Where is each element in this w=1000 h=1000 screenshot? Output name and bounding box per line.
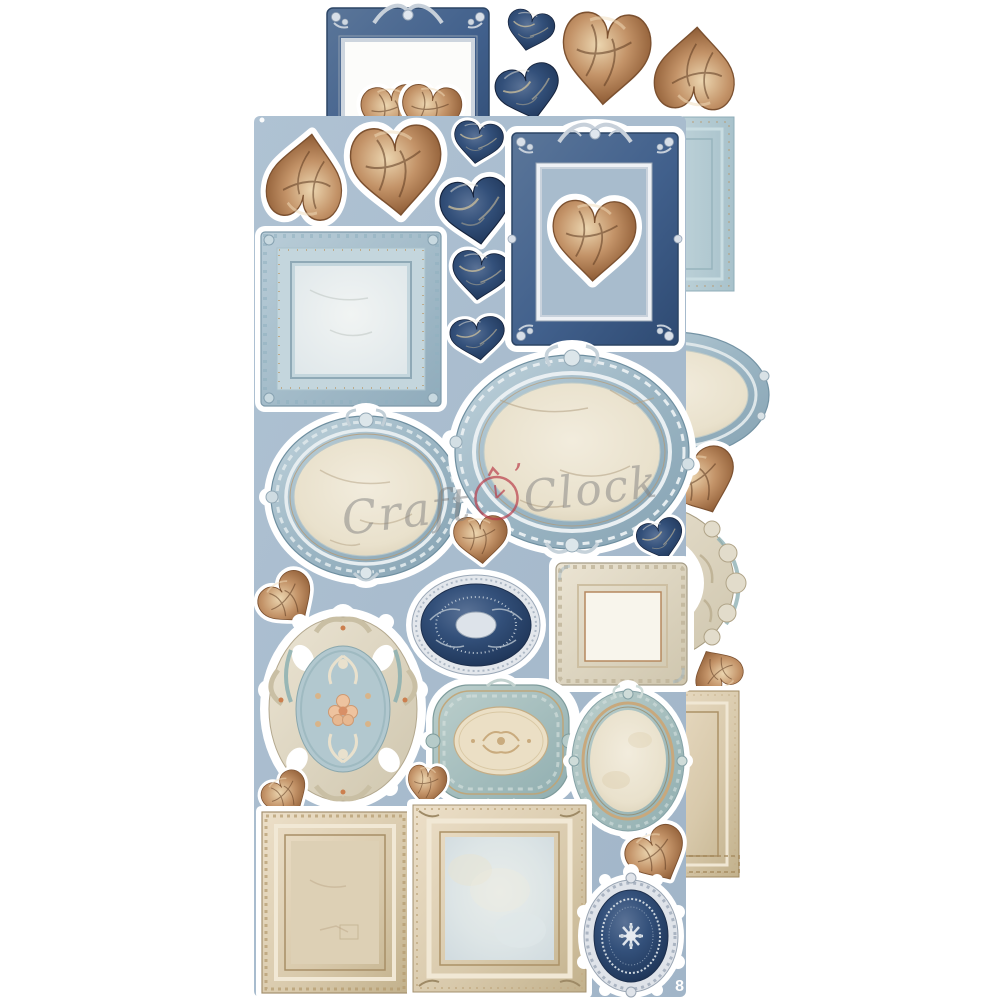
frame-beige-square-icon — [407, 799, 592, 998]
registration-dot-topleft — [260, 118, 265, 123]
heart-navy-top-small-icon — [503, 7, 557, 55]
page-number: 8 — [675, 978, 684, 995]
front-sheet-pieces — [252, 119, 700, 999]
heart-brown-top-inverted-icon — [653, 25, 737, 111]
product-photo: Craft ’ Clock 8 — [0, 0, 1000, 1000]
heart-brown-top-large-icon — [559, 11, 653, 108]
frame-square-lightblue-icon — [255, 226, 447, 412]
medallion-navy-center-icon — [406, 569, 546, 681]
frame-beige-rect-icon — [256, 806, 414, 999]
frame-navy-with-heart-icon — [505, 119, 685, 352]
frame-square-cream-icon — [549, 556, 694, 692]
diecut-sheets-illustration: Craft ’ Clock 8 — [0, 0, 1000, 1000]
